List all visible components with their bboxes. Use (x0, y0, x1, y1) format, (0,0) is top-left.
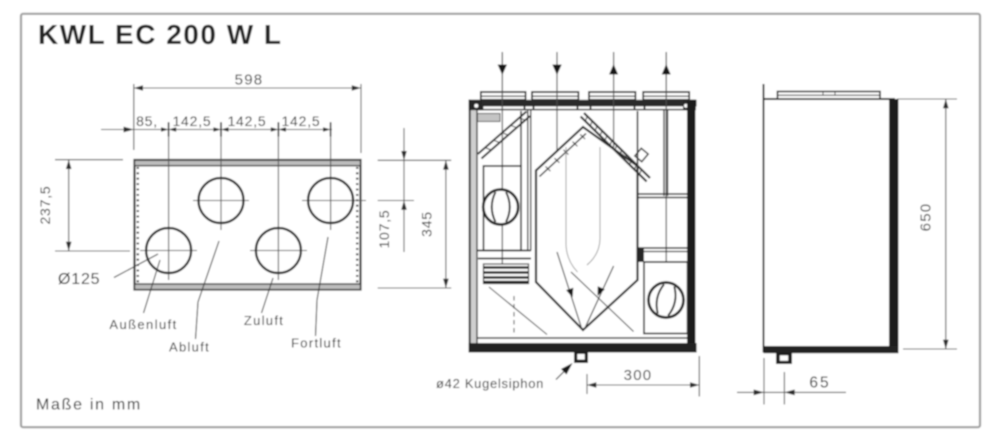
svg-text:Zuluft: Zuluft (244, 313, 284, 328)
svg-text:Fortluft: Fortluft (291, 336, 342, 351)
svg-text:Außenluft: Außenluft (109, 317, 177, 332)
svg-text:650: 650 (918, 203, 935, 232)
svg-text:300: 300 (624, 367, 653, 384)
svg-text:142,5: 142,5 (281, 113, 320, 129)
svg-text:107,5: 107,5 (376, 209, 392, 248)
svg-text:Ø125: Ø125 (58, 271, 100, 288)
svg-text:KWL EC 200 W L: KWL EC 200 W L (38, 19, 283, 50)
svg-text:85,: 85, (136, 113, 158, 129)
svg-text:598: 598 (235, 72, 264, 89)
svg-text:142,5: 142,5 (172, 113, 211, 129)
svg-text:Abluft: Abluft (169, 340, 210, 355)
svg-text:345: 345 (419, 211, 435, 237)
svg-text:ø42 Kugelsiphon: ø42 Kugelsiphon (436, 376, 544, 391)
svg-text:Maße in mm: Maße in mm (36, 397, 142, 414)
svg-text:237,5: 237,5 (37, 185, 53, 224)
svg-text:65: 65 (809, 375, 830, 392)
svg-text:142,5: 142,5 (227, 113, 266, 129)
